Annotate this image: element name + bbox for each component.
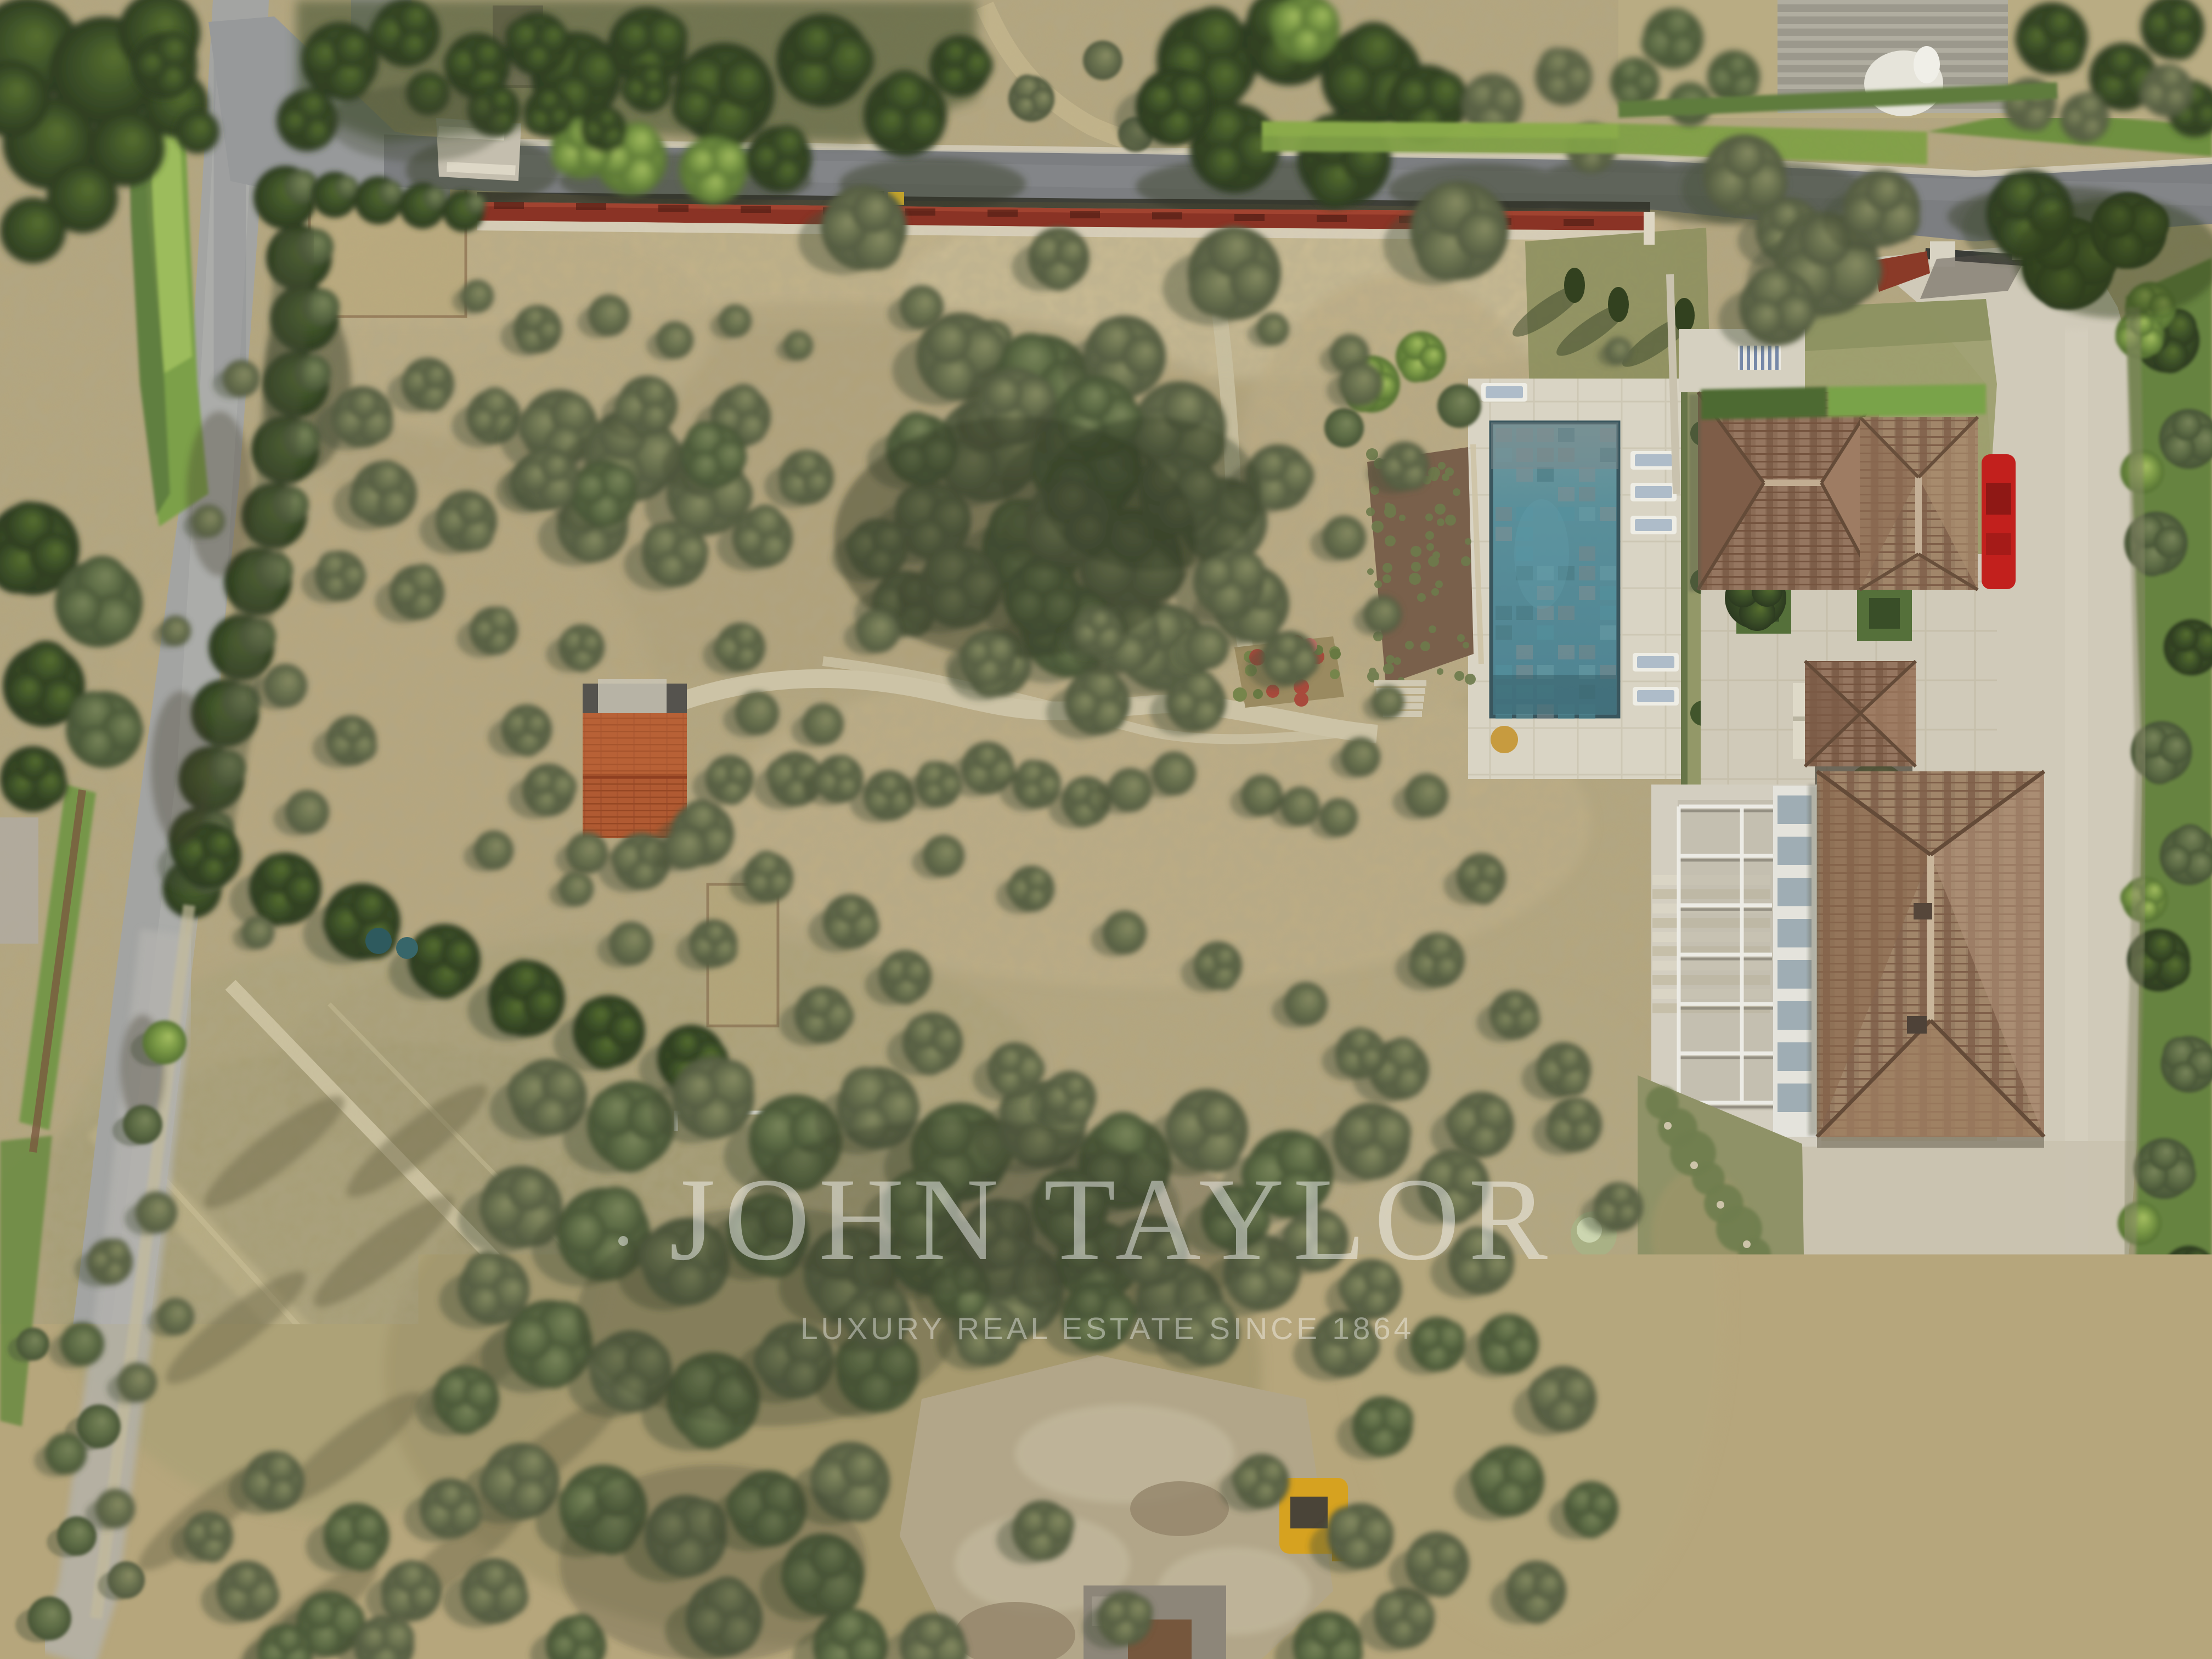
svg-text:JOHN TAYLOR: JOHN TAYLOR bbox=[669, 1154, 1556, 1285]
svg-text:LUXURY REAL ESTATE SINCE 1864: LUXURY REAL ESTATE SINCE 1864 bbox=[800, 1311, 1414, 1346]
